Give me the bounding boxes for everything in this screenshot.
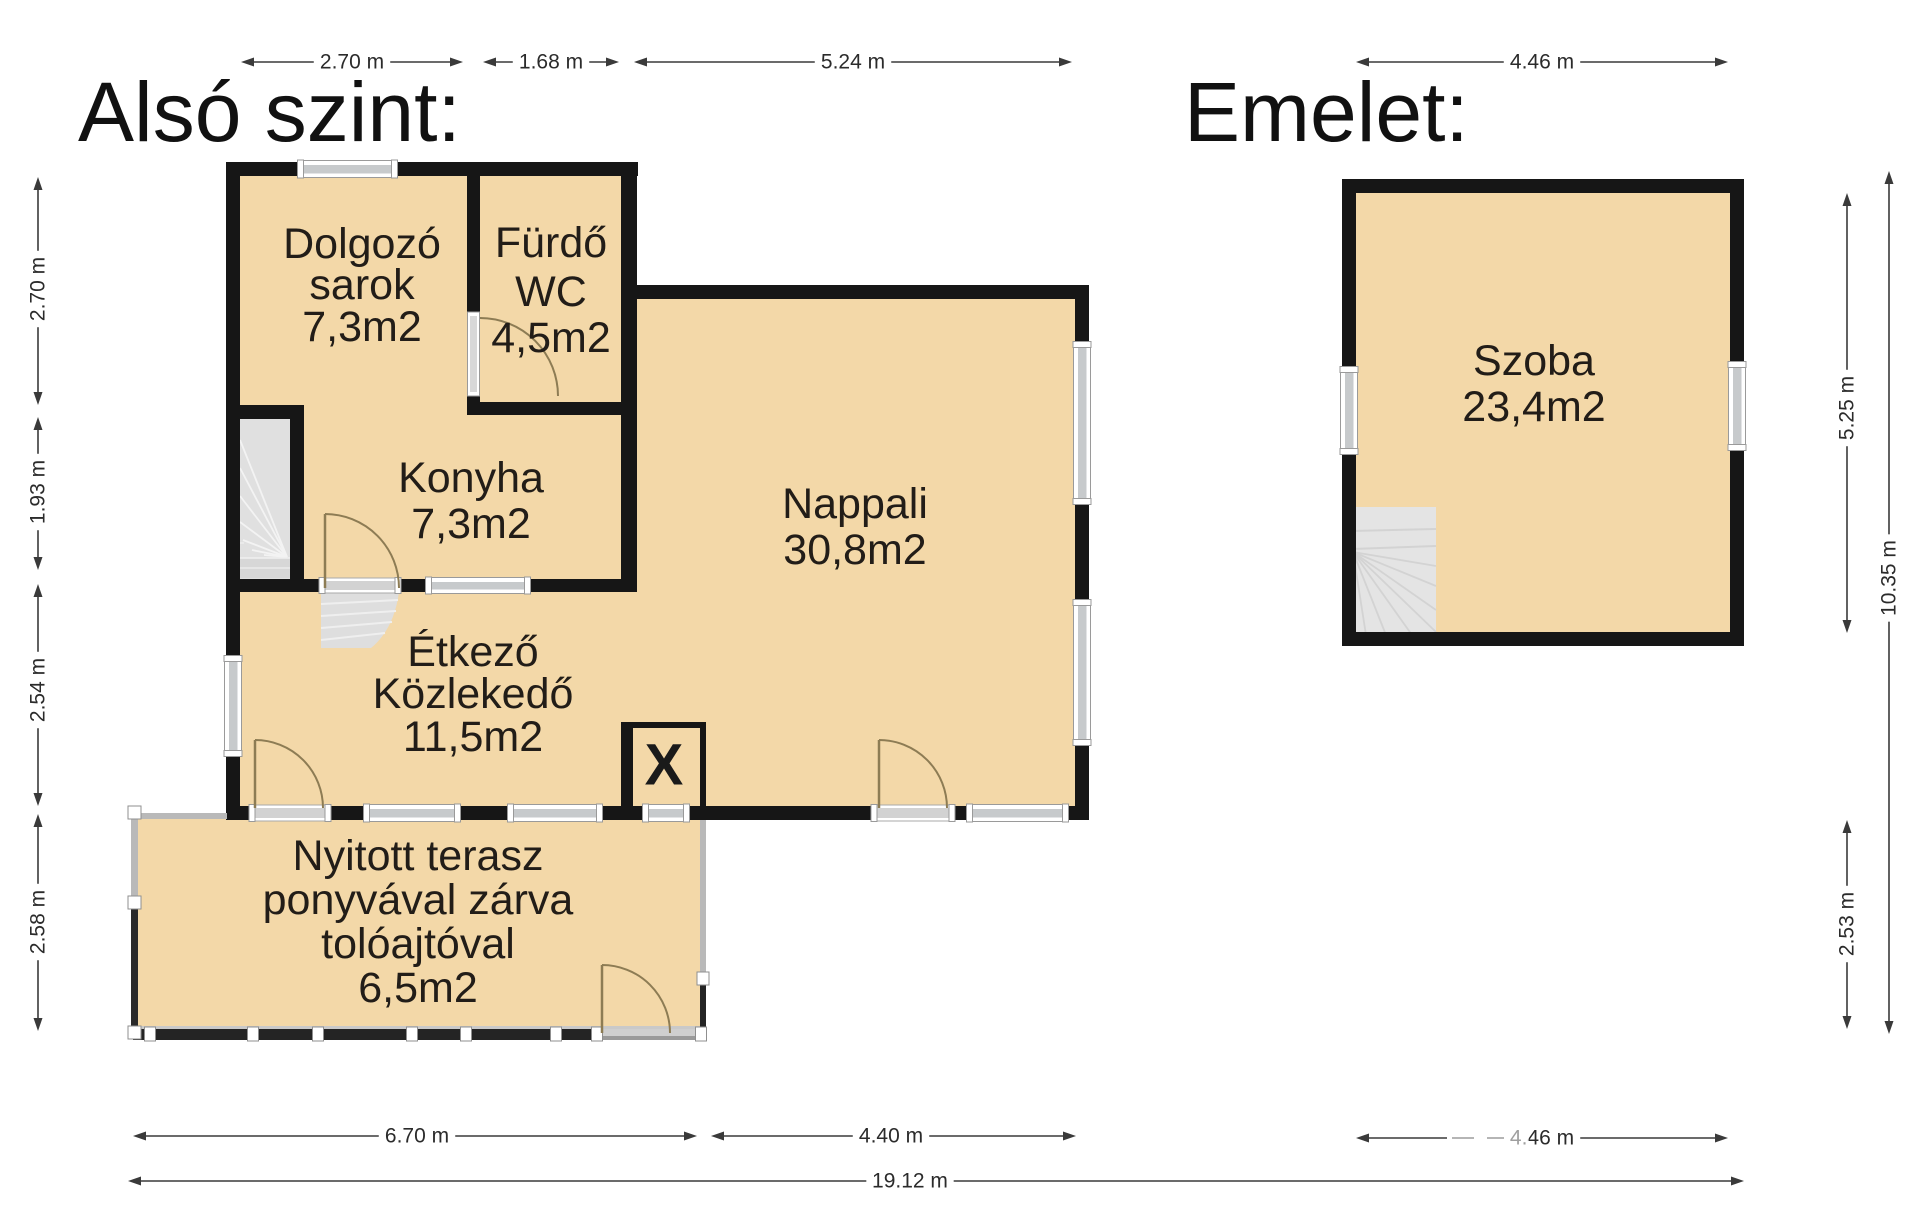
svg-text:Fürdő: Fürdő <box>495 219 607 267</box>
svg-text:5.25 m: 5.25 m <box>1836 376 1859 440</box>
svg-text:5.24 m: 5.24 m <box>821 51 885 74</box>
svg-text:2.54 m: 2.54 m <box>27 658 50 722</box>
svg-text:4,5m2: 4,5m2 <box>491 314 611 362</box>
svg-text:4.40 m: 4.40 m <box>859 1125 923 1148</box>
svg-text:Alsó szint:: Alsó szint: <box>78 65 461 159</box>
svg-text:6.70 m: 6.70 m <box>385 1125 449 1148</box>
svg-text:1.93 m: 1.93 m <box>27 460 50 524</box>
svg-text:Konyha: Konyha <box>398 454 544 502</box>
svg-text:2.58 m: 2.58 m <box>27 890 50 954</box>
svg-text:23,4m2: 23,4m2 <box>1462 383 1605 431</box>
svg-text:Nyitott terasz: Nyitott terasz <box>293 832 544 880</box>
svg-text:10.35 m: 10.35 m <box>1878 540 1901 616</box>
svg-text:6,5m2: 6,5m2 <box>358 964 478 1012</box>
svg-text:11,5m2: 11,5m2 <box>403 713 543 761</box>
svg-text:Közlekedő: Közlekedő <box>373 670 574 718</box>
svg-text:2.53 m: 2.53 m <box>1836 892 1859 956</box>
svg-text:WC: WC <box>515 268 587 316</box>
svg-text:ponyvával zárva: ponyvával zárva <box>263 876 574 924</box>
svg-text:X: X <box>645 733 684 798</box>
svg-text:Nappali: Nappali <box>782 480 928 528</box>
svg-text:19.12 m: 19.12 m <box>872 1170 948 1193</box>
svg-text:4.46 m: 4.46 m <box>1510 51 1574 74</box>
svg-text:tolóajtóval: tolóajtóval <box>321 920 515 968</box>
svg-text:1.68 m: 1.68 m <box>519 51 583 74</box>
svg-text:2.70 m: 2.70 m <box>27 257 50 321</box>
svg-text:7,3m2: 7,3m2 <box>411 500 531 548</box>
svg-text:Szoba: Szoba <box>1473 337 1595 385</box>
svg-text:2.70 m: 2.70 m <box>320 51 384 74</box>
svg-text:sarok: sarok <box>309 261 415 309</box>
svg-text:7,3m2: 7,3m2 <box>302 303 422 351</box>
svg-text:30,8m2: 30,8m2 <box>783 526 926 574</box>
svg-text:Emelet:: Emelet: <box>1184 65 1469 159</box>
svg-text:Étkező: Étkező <box>407 628 538 676</box>
